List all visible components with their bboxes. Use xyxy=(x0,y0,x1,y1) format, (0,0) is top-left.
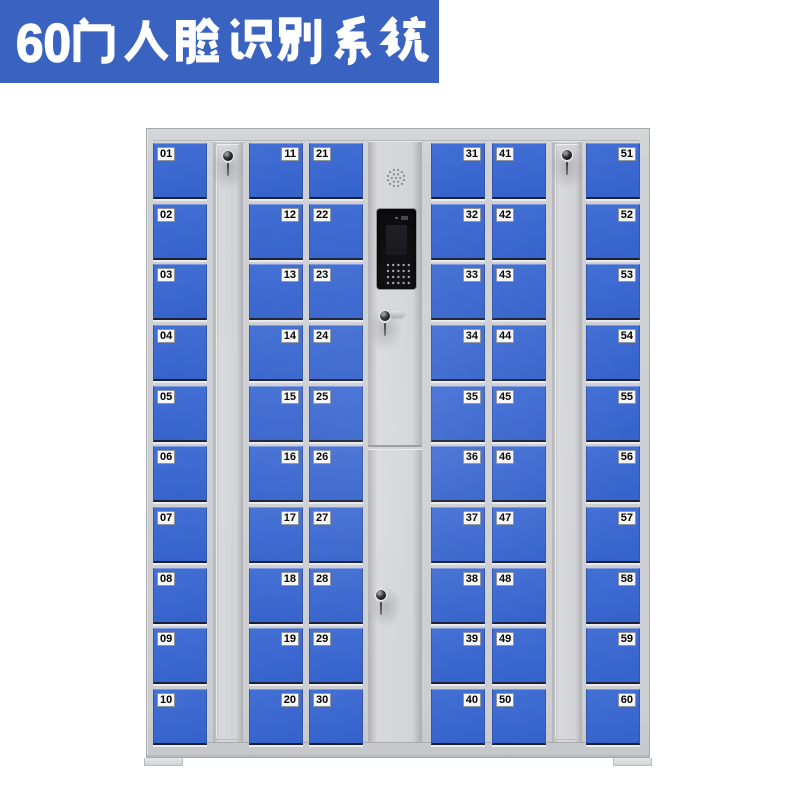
svg-text:60: 60 xyxy=(16,14,71,74)
